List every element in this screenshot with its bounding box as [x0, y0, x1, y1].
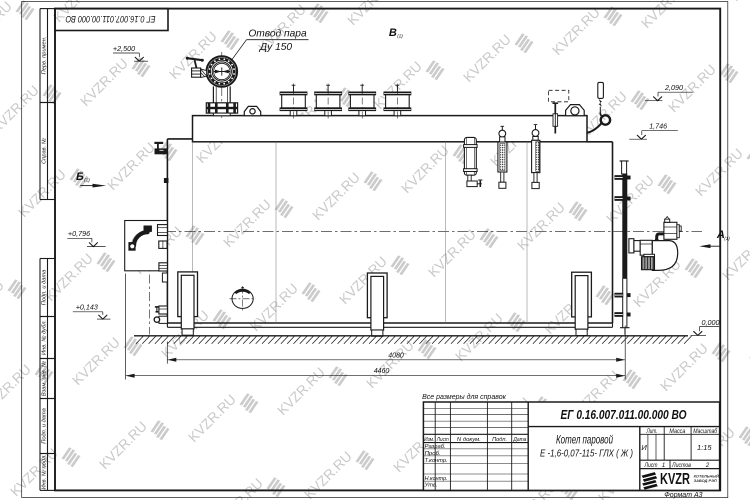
svg-text:И: И [641, 443, 647, 452]
svg-text:Взам. инв. №: Взам. инв. № [41, 361, 47, 396]
svg-text:Лит.: Лит. [646, 429, 658, 435]
svg-text:Котел паровой: Котел паровой [556, 435, 613, 447]
svg-text:Инв. № подл.: Инв. № подл. [41, 454, 47, 489]
svg-text:+0,143: +0,143 [76, 302, 98, 311]
svg-text:Формат А3: Формат А3 [664, 492, 702, 499]
svg-text:Подп. и дата: Подп. и дата [41, 270, 47, 306]
svg-text:В: В [389, 27, 397, 39]
svg-text:Листов: Листов [671, 463, 691, 469]
svg-text:Лист: Лист [644, 463, 658, 469]
svg-text:2,090: 2,090 [664, 83, 683, 92]
svg-text:Е -1,6-0,07-115- ГЛХ ( Ж ): Е -1,6-0,07-115- ГЛХ ( Ж ) [540, 447, 633, 459]
svg-text:Ду 150: Ду 150 [259, 42, 293, 53]
svg-text:Лист: Лист [436, 437, 449, 443]
svg-text:Б: Б [76, 171, 84, 183]
svg-text:1: 1 [662, 463, 665, 469]
svg-text:Дата: Дата [513, 437, 528, 443]
svg-text:0,000: 0,000 [702, 318, 720, 327]
svg-text:4080: 4080 [388, 352, 404, 359]
svg-text:Подп. и дата: Подп. и дата [41, 408, 47, 444]
svg-text:Разраб.: Разраб. [425, 444, 446, 450]
svg-text:Утв.: Утв. [424, 483, 438, 489]
svg-text:Масса: Масса [669, 429, 686, 435]
svg-text:N докум.: N докум. [457, 437, 481, 443]
svg-text:Все размеры для справок: Все размеры для справок [422, 393, 507, 401]
svg-text:(1): (1) [724, 236, 730, 241]
svg-text:+0,796: +0,796 [68, 229, 90, 238]
svg-text:Н.контр.: Н.контр. [425, 476, 448, 482]
svg-text:Т.контр.: Т.контр. [425, 458, 448, 464]
svg-text:+2,500: +2,500 [113, 44, 135, 53]
svg-text:1:15: 1:15 [697, 443, 712, 452]
svg-text:Изм.: Изм. [424, 437, 434, 443]
svg-text:Отвод пара: Отвод пара [248, 29, 307, 40]
svg-text:KVZR: KVZR [660, 471, 690, 488]
svg-text:(2): (2) [397, 33, 403, 38]
svg-text:ЕГ 0.16.007.011.00.000 ВО: ЕГ 0.16.007.011.00.000 ВО [65, 13, 155, 24]
svg-text:Перв. примен.: Перв. примен. [41, 37, 47, 75]
svg-text:Справ. №: Справ. № [41, 138, 47, 164]
svg-text:4460: 4460 [374, 368, 390, 375]
svg-text:Инв. № дубл.: Инв. № дубл. [41, 320, 47, 355]
svg-text:(2): (2) [84, 177, 90, 182]
svg-text:Масштаб: Масштаб [693, 429, 718, 435]
svg-text:2: 2 [705, 463, 710, 469]
svg-text:Проб.: Проб. [425, 451, 441, 457]
svg-text:Подп.: Подп. [492, 437, 507, 443]
svg-text:ЗАВОД РЭП: ЗАВОД РЭП [694, 478, 717, 483]
svg-text:ЕГ 0.16.007.011.00.000 ВО: ЕГ 0.16.007.011.00.000 ВО [561, 407, 687, 422]
svg-text:1,746: 1,746 [649, 122, 667, 131]
